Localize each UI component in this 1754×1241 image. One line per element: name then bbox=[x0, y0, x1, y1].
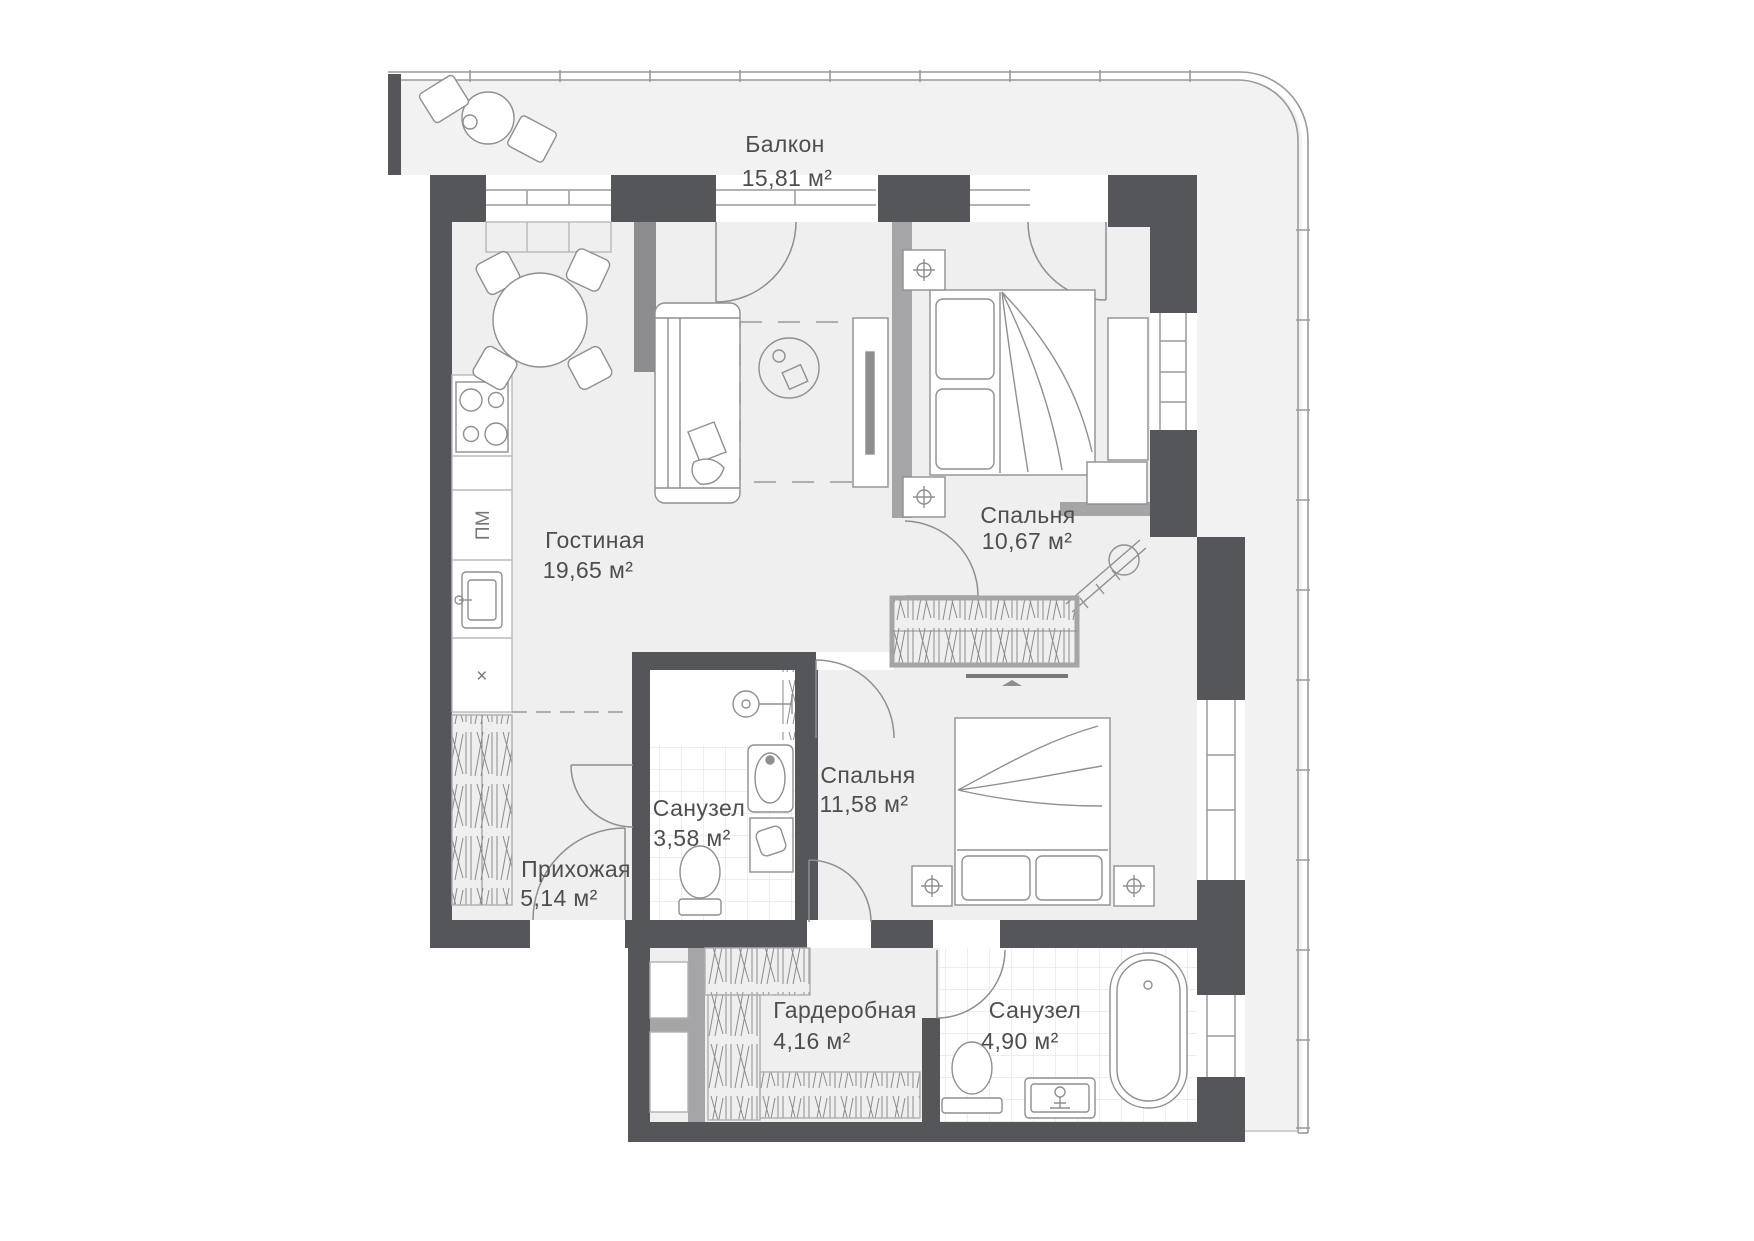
sink bbox=[1025, 1078, 1095, 1118]
window-bench bbox=[1108, 318, 1148, 460]
dressing-table bbox=[1087, 462, 1147, 504]
nightstand bbox=[903, 250, 945, 290]
svg-text:10,67 м²: 10,67 м² bbox=[982, 528, 1073, 554]
svg-text:Гостиная: Гостиная bbox=[545, 527, 645, 553]
svg-text:4,90 м²: 4,90 м² bbox=[981, 1028, 1058, 1054]
svg-text:11,58 м²: 11,58 м² bbox=[820, 791, 909, 817]
nightstand bbox=[903, 477, 945, 517]
svg-text:19,65 м²: 19,65 м² bbox=[543, 557, 634, 583]
balcony-table bbox=[462, 92, 514, 144]
sink bbox=[748, 745, 793, 812]
svg-text:3,58 м²: 3,58 м² bbox=[653, 825, 730, 851]
dishwasher-label: ПМ bbox=[473, 510, 494, 540]
svg-text:Спальня: Спальня bbox=[820, 762, 915, 788]
washing-machine bbox=[750, 818, 793, 872]
floor-plan-canvas: ПМ × bbox=[0, 0, 1754, 1241]
svg-text:Санузел: Санузел bbox=[989, 997, 1081, 1023]
svg-text:Гардеробная: Гардеробная bbox=[773, 997, 917, 1023]
svg-text:Балкон: Балкон bbox=[745, 131, 825, 157]
svg-text:Санузел: Санузел bbox=[653, 795, 745, 821]
toilet bbox=[679, 846, 721, 915]
svg-text:5,14 м²: 5,14 м² bbox=[520, 885, 597, 911]
label-bedroom1: Спальня 10,67 м² bbox=[980, 502, 1075, 554]
nightstand bbox=[1114, 866, 1154, 906]
nightstand bbox=[912, 866, 952, 906]
sofa bbox=[655, 303, 740, 503]
svg-text:4,16 м²: 4,16 м² bbox=[773, 1028, 850, 1054]
vent-label: × bbox=[476, 666, 488, 687]
floor-plan-page: ПМ × bbox=[0, 0, 1754, 1241]
svg-text:Прихожая: Прихожая bbox=[521, 856, 631, 882]
bathtub bbox=[1110, 953, 1187, 1108]
hall-wardrobe bbox=[452, 715, 512, 905]
floor-nook bbox=[1150, 537, 1197, 948]
svg-text:15,81 м²: 15,81 м² bbox=[742, 165, 833, 191]
tv-cabinet-living bbox=[853, 318, 888, 487]
dining-table bbox=[493, 273, 587, 367]
svg-text:Спальня: Спальня bbox=[980, 502, 1075, 528]
balcony-left-wall bbox=[388, 74, 401, 175]
